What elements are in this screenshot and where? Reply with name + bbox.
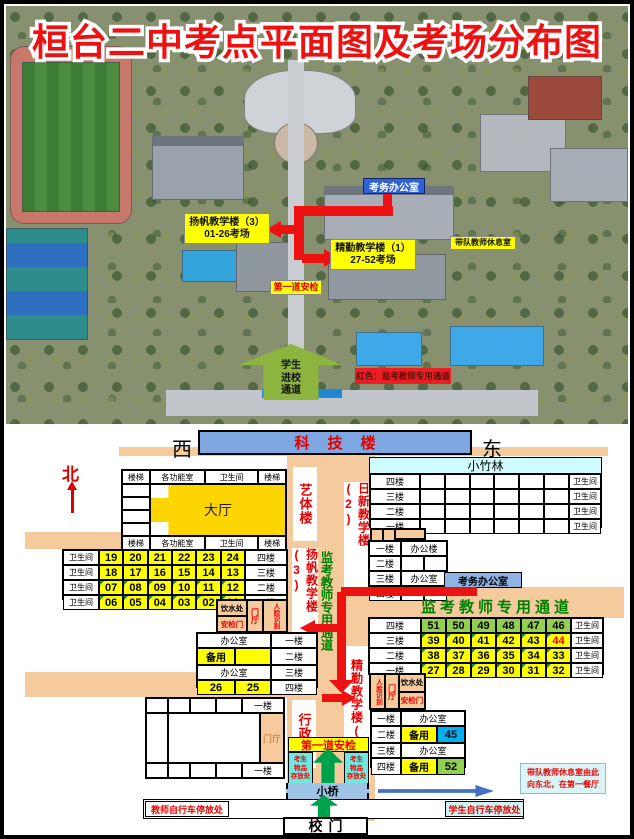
office-cell: 办公室 [401,743,465,758]
rixin-building: 四楼 卫生间 三楼 卫生间 二楼 卫生间 一楼 卫生间 [369,473,602,528]
floor-label: 三楼 [370,489,420,504]
restroom-cell: 卫生间 [571,648,603,663]
compass-west: 西 [172,433,192,462]
exam-room-cell: 31 [521,663,546,678]
aerial-photo: 考务办公室 扬帆教学楼（3） 01-26考场 精勤教学楼（1） 27-52考场 … [6,6,628,424]
empty-room [544,504,569,519]
exam-room-cell: 47 [521,618,546,633]
exam-room-cell: 03 [172,595,196,610]
face-scan-cell: 人脸识别 [370,674,385,709]
empty-room [519,489,544,504]
function-rooms-cell: 各功能室 [150,470,205,484]
stair-cell [395,529,425,539]
student-channel-line3: 通道 [281,385,301,398]
lobby-hall: 大厅 [151,485,285,535]
exam-room-cell: 21 [148,550,172,565]
rixin-label: 日新教学楼(2) [344,482,370,588]
teacher-bike-parking: 教师自行车停放处 [145,801,229,817]
floor-label: 三楼 [369,633,421,648]
storage-line: 考生 [294,756,307,764]
red-path-photo-left-arrow-body [280,225,298,234]
campus-road-south [166,390,538,416]
exam-room-cell: 12 [221,580,245,595]
storage-line: 物品 [350,765,363,773]
exam-room-cell: 06 [99,595,123,610]
empty-cell [146,763,168,778]
backup-room-cell: 备用 [197,648,235,665]
floor-label: 四楼 [370,474,420,489]
stairs-cell: 楼梯 [258,470,286,484]
student-bike-parking: 学生自行车停放处 [445,801,524,817]
floor-label: 二楼 [369,648,421,663]
lobby-cell: 门厅 [385,674,399,709]
exam-room-cell-red: 44 [546,633,571,648]
exam-room-cell: 49 [471,618,496,633]
exam-room-cell: 13 [221,565,245,580]
empty-cell [168,698,190,713]
empty-cell [122,484,150,497]
empty-room [544,519,569,534]
empty-room [494,504,519,519]
floor-label: 四楼 [271,680,317,695]
empty-room [494,519,519,534]
empty-room [470,504,495,519]
exam-room-cell: 04 [148,595,172,610]
floor-label: 一楼 [242,698,284,713]
exam-room-cell: 23 [196,550,220,565]
exam-room-cell: 43 [521,633,546,648]
exam-room-cell: 05 [123,595,147,610]
yangfan-entry-block: 饮水处 安检门 门厅 人脸识别 [216,599,288,633]
red-path-photo-horizontal [294,206,393,216]
exam-room-cell: 41 [471,633,496,648]
exam-room-cell: 26 [197,680,235,695]
face-scan-cell: 人脸识别 [263,600,287,632]
poster-sheet: 考务办公室 扬帆教学楼（3） 01-26考场 精勤教学楼（1） 27-52考场 … [4,4,630,835]
note-line2: 向东北，在第一餐厅 [527,779,599,790]
floor-label: 一楼 [369,541,401,556]
empty-cell [216,763,242,778]
exam-room-cell: 38 [421,648,446,663]
exam-room-cell: 22 [172,550,196,565]
restroom-cell: 卫生间 [571,633,603,648]
exam-room-cell: 11 [196,580,220,595]
empty-room [494,489,519,504]
lobby-cell: 门厅 [260,713,284,763]
exam-room-cell: 51 [421,618,446,633]
photo-jingqin-label: 精勤教学楼（1） 27-52考场 [330,239,416,270]
lobby-cell: 门厅 [247,600,263,632]
floor-label: 三楼 [369,571,401,586]
poster-title: 桓台二中考点平面图及考场分布图 [4,12,630,66]
floor-label: 一楼 [271,633,317,648]
office-block-cell: 办公楼 [401,541,447,556]
photo-first-security-label: 第一道安检 [270,280,322,295]
floor-label: 二楼 [271,648,317,665]
exam-room-cell: 34 [521,648,546,663]
function-rooms-cell: 各功能室 [150,536,205,550]
empty-room [445,474,470,489]
items-storage-cell-right: 考生 物品 存放处 [344,752,369,786]
restroom-cell: 卫生间 [205,536,258,550]
restroom-cell: 卫生间 [63,550,99,565]
security-gate-cell: 安检门 [217,616,247,632]
red-path-plan-vertical [337,592,346,682]
floor-label: 一楼 [242,763,284,778]
exam-room-cell: 45 [437,726,465,743]
restroom-cell: 卫生间 [569,489,601,504]
empty-cell [122,497,150,510]
exam-room-cell: 24 [221,550,245,565]
storage-line: 物品 [294,765,307,773]
team-rest-note: 带队教师休息室由此 向东北，在第一餐厅 [520,763,606,794]
student-channel-line1: 学生 [281,360,301,373]
yiti-label: 艺体楼 [293,467,317,541]
empty-room [420,489,445,504]
empty-cell [146,698,168,713]
red-path-photo-right-arrow-body [302,254,326,263]
blue-roof-1 [356,332,422,366]
tennis-courts [6,228,88,340]
exam-room-cell: 17 [123,565,147,580]
empty-room [470,519,495,534]
red-roof-building [528,76,602,120]
restroom-cell: 卫生间 [571,663,603,678]
invigilator-channel-banner: 监考教师专用通道 [385,598,609,615]
empty-cell [122,510,150,523]
empty-cell [401,556,424,571]
restroom-cell: 卫生间 [571,618,603,633]
restroom-cell: 卫生间 [63,580,99,595]
jingqin-exam-table: 四楼 51 50 49 48 47 46 卫生间 三楼 39 40 41 42 … [368,617,604,675]
photo-yangfan-line2: 01-26考场 [204,229,250,241]
restroom-cell: 卫生间 [205,470,258,484]
storage-line: 考生 [350,756,363,764]
note-line1: 带队教师休息室由此 [527,767,599,778]
photo-student-channel-label: 学生 进校 通道 [274,358,308,400]
empty-room [519,474,544,489]
office-cell: 办公室 [197,665,271,680]
yangfan-exam-table: 卫生间 19 20 21 22 23 24 四楼 卫生间 18 17 16 15… [62,549,288,600]
floor-label: 四楼 [371,758,401,775]
floor-label: 三楼 [371,743,401,758]
exam-room-cell: 36 [471,648,496,663]
exam-room-cell: 46 [546,618,571,633]
empty-cell [216,698,242,713]
empty-cell [190,698,216,713]
backup-room-cell: 备用 [401,758,437,775]
photo-jingqin-line2: 27-52考场 [350,255,396,267]
xingzheng-building: 一楼 门厅 一楼 [145,697,285,779]
empty-room [470,474,495,489]
exam-room-cell: 39 [421,633,446,648]
bamboo-grove-bar: 小竹林 [369,457,602,474]
exam-room-cell: 37 [446,648,471,663]
floor-label: 二楼 [371,726,401,743]
floor-label: 四楼 [369,618,421,633]
exam-room-cell: 08 [123,580,147,595]
photo-jingqin-line1: 精勤教学楼（1） [335,243,411,255]
empty-room [445,504,470,519]
bridge-band: 小桥 [286,783,369,799]
exam-room-cell: 16 [148,565,172,580]
empty-room [494,474,519,489]
exam-room-cell: 52 [437,758,465,775]
keji-building-bar: 科技楼 [198,430,472,455]
exam-room-cell: 35 [496,648,521,663]
yiti-building: 楼梯 各功能室 卫生间 楼梯 大厅 楼梯 各功能室 卫生间 楼梯 [121,469,287,551]
empty-room [519,504,544,519]
empty-cell [190,763,216,778]
jingqin-entry-block: 人脸识别 门厅 饮水处 安检门 [369,673,426,710]
exam-room-cell: 30 [496,663,521,678]
student-channel-line2: 进校 [281,373,301,386]
office-table-se: 一楼 办公室 二楼 备用 45 三楼 办公室 四楼 备用 52 [370,710,466,768]
floor-label: 三楼 [245,565,287,580]
empty-cell [146,713,168,763]
photo-red-note-label: 红色：监考教师专用通道 [355,368,451,384]
empty-room [544,489,569,504]
floor-label: 一楼 [371,711,401,726]
exam-room-cell: 15 [172,565,196,580]
invigilator-channel-vertical-label: 监考教师专用通道 [317,544,335,658]
photo-exam-office-label: 考务办公室 [363,178,425,194]
stairs-cell: 楼梯 [122,470,150,484]
empty-cell [168,713,260,763]
empty-cell [122,523,150,536]
office-cell: 办公室 [197,633,271,648]
items-storage-cell-left: 考生 物品 存放处 [288,752,313,786]
floor-label: 二楼 [370,504,420,519]
exam-room-cell: 29 [471,663,496,678]
exam-room-cell: 18 [99,565,123,580]
exam-room-cell: 19 [99,550,123,565]
exam-room-cell: 48 [496,618,521,633]
red-path-left-arrow-body [314,624,344,632]
office-cell: 办公室 [401,571,447,586]
photo-yangfan-label: 扬帆教学楼（3） 01-26考场 [184,213,270,244]
exam-room-cell: 10 [172,580,196,595]
exam-room-cell: 40 [446,633,471,648]
exam-room-cell: 50 [446,618,471,633]
floor-label: 四楼 [245,550,287,565]
east-direction-arrow-icon [378,785,494,797]
restroom-cell: 卫生间 [569,519,601,534]
security-gate-cell: 安检门 [399,692,425,710]
exam-room-cell: 09 [148,580,172,595]
office-table-sw: 办公室 一楼 备用 二楼 办公室 三楼 26 25 四楼 [196,632,318,688]
red-path-plan-horizontal [341,587,477,596]
restroom-cell: 卫生间 [63,565,99,580]
soccer-field [22,62,120,212]
empty-room [470,489,495,504]
storage-line: 存放处 [347,773,367,781]
exam-room-cell: 07 [99,580,123,595]
exam-office-label: 考务办公室 [444,572,522,588]
floor-label: 二楼 [245,580,287,595]
exam-room-cell: 25 [235,680,271,695]
building-west [152,136,244,200]
empty-room [544,474,569,489]
stairs-cell: 楼梯 [258,536,286,550]
blue-roof-2 [450,326,544,366]
empty-room [445,489,470,504]
building-ne-2 [550,148,628,202]
water-station-cell: 饮水处 [399,674,425,692]
photo-yangfan-line1: 扬帆教学楼（3） [189,217,265,229]
empty-room [420,474,445,489]
storage-line: 存放处 [291,773,311,781]
exam-room-cell: 33 [546,648,571,663]
empty-cell [424,556,447,571]
empty-room [445,519,470,534]
school-gate-box: 校门 [283,817,368,835]
exam-room-cell: 20 [123,550,147,565]
water-station-cell: 饮水处 [217,600,247,616]
floor-label: 三楼 [271,665,317,680]
floor-label: 二楼 [369,556,401,571]
restroom-cell: 卫生间 [569,474,601,489]
exam-room-cell: 32 [546,663,571,678]
stairs-cell: 楼梯 [122,536,150,550]
empty-cell [168,763,190,778]
office-cell: 办公室 [401,711,465,726]
backup-empty-cell [235,648,271,665]
restroom-cell: 卫生间 [63,595,99,610]
empty-room [420,504,445,519]
exam-room-cell: 42 [496,633,521,648]
backup-room-cell: 备用 [401,726,437,743]
red-path-right-arrow-body [322,694,344,702]
north-arrow-icon [67,481,77,513]
empty-room [519,519,544,534]
photo-team-rest-label: 带队教师休息室 [450,236,516,250]
exam-room-cell: 28 [446,663,471,678]
exam-room-cell: 14 [196,565,220,580]
restroom-cell: 卫生间 [569,504,601,519]
